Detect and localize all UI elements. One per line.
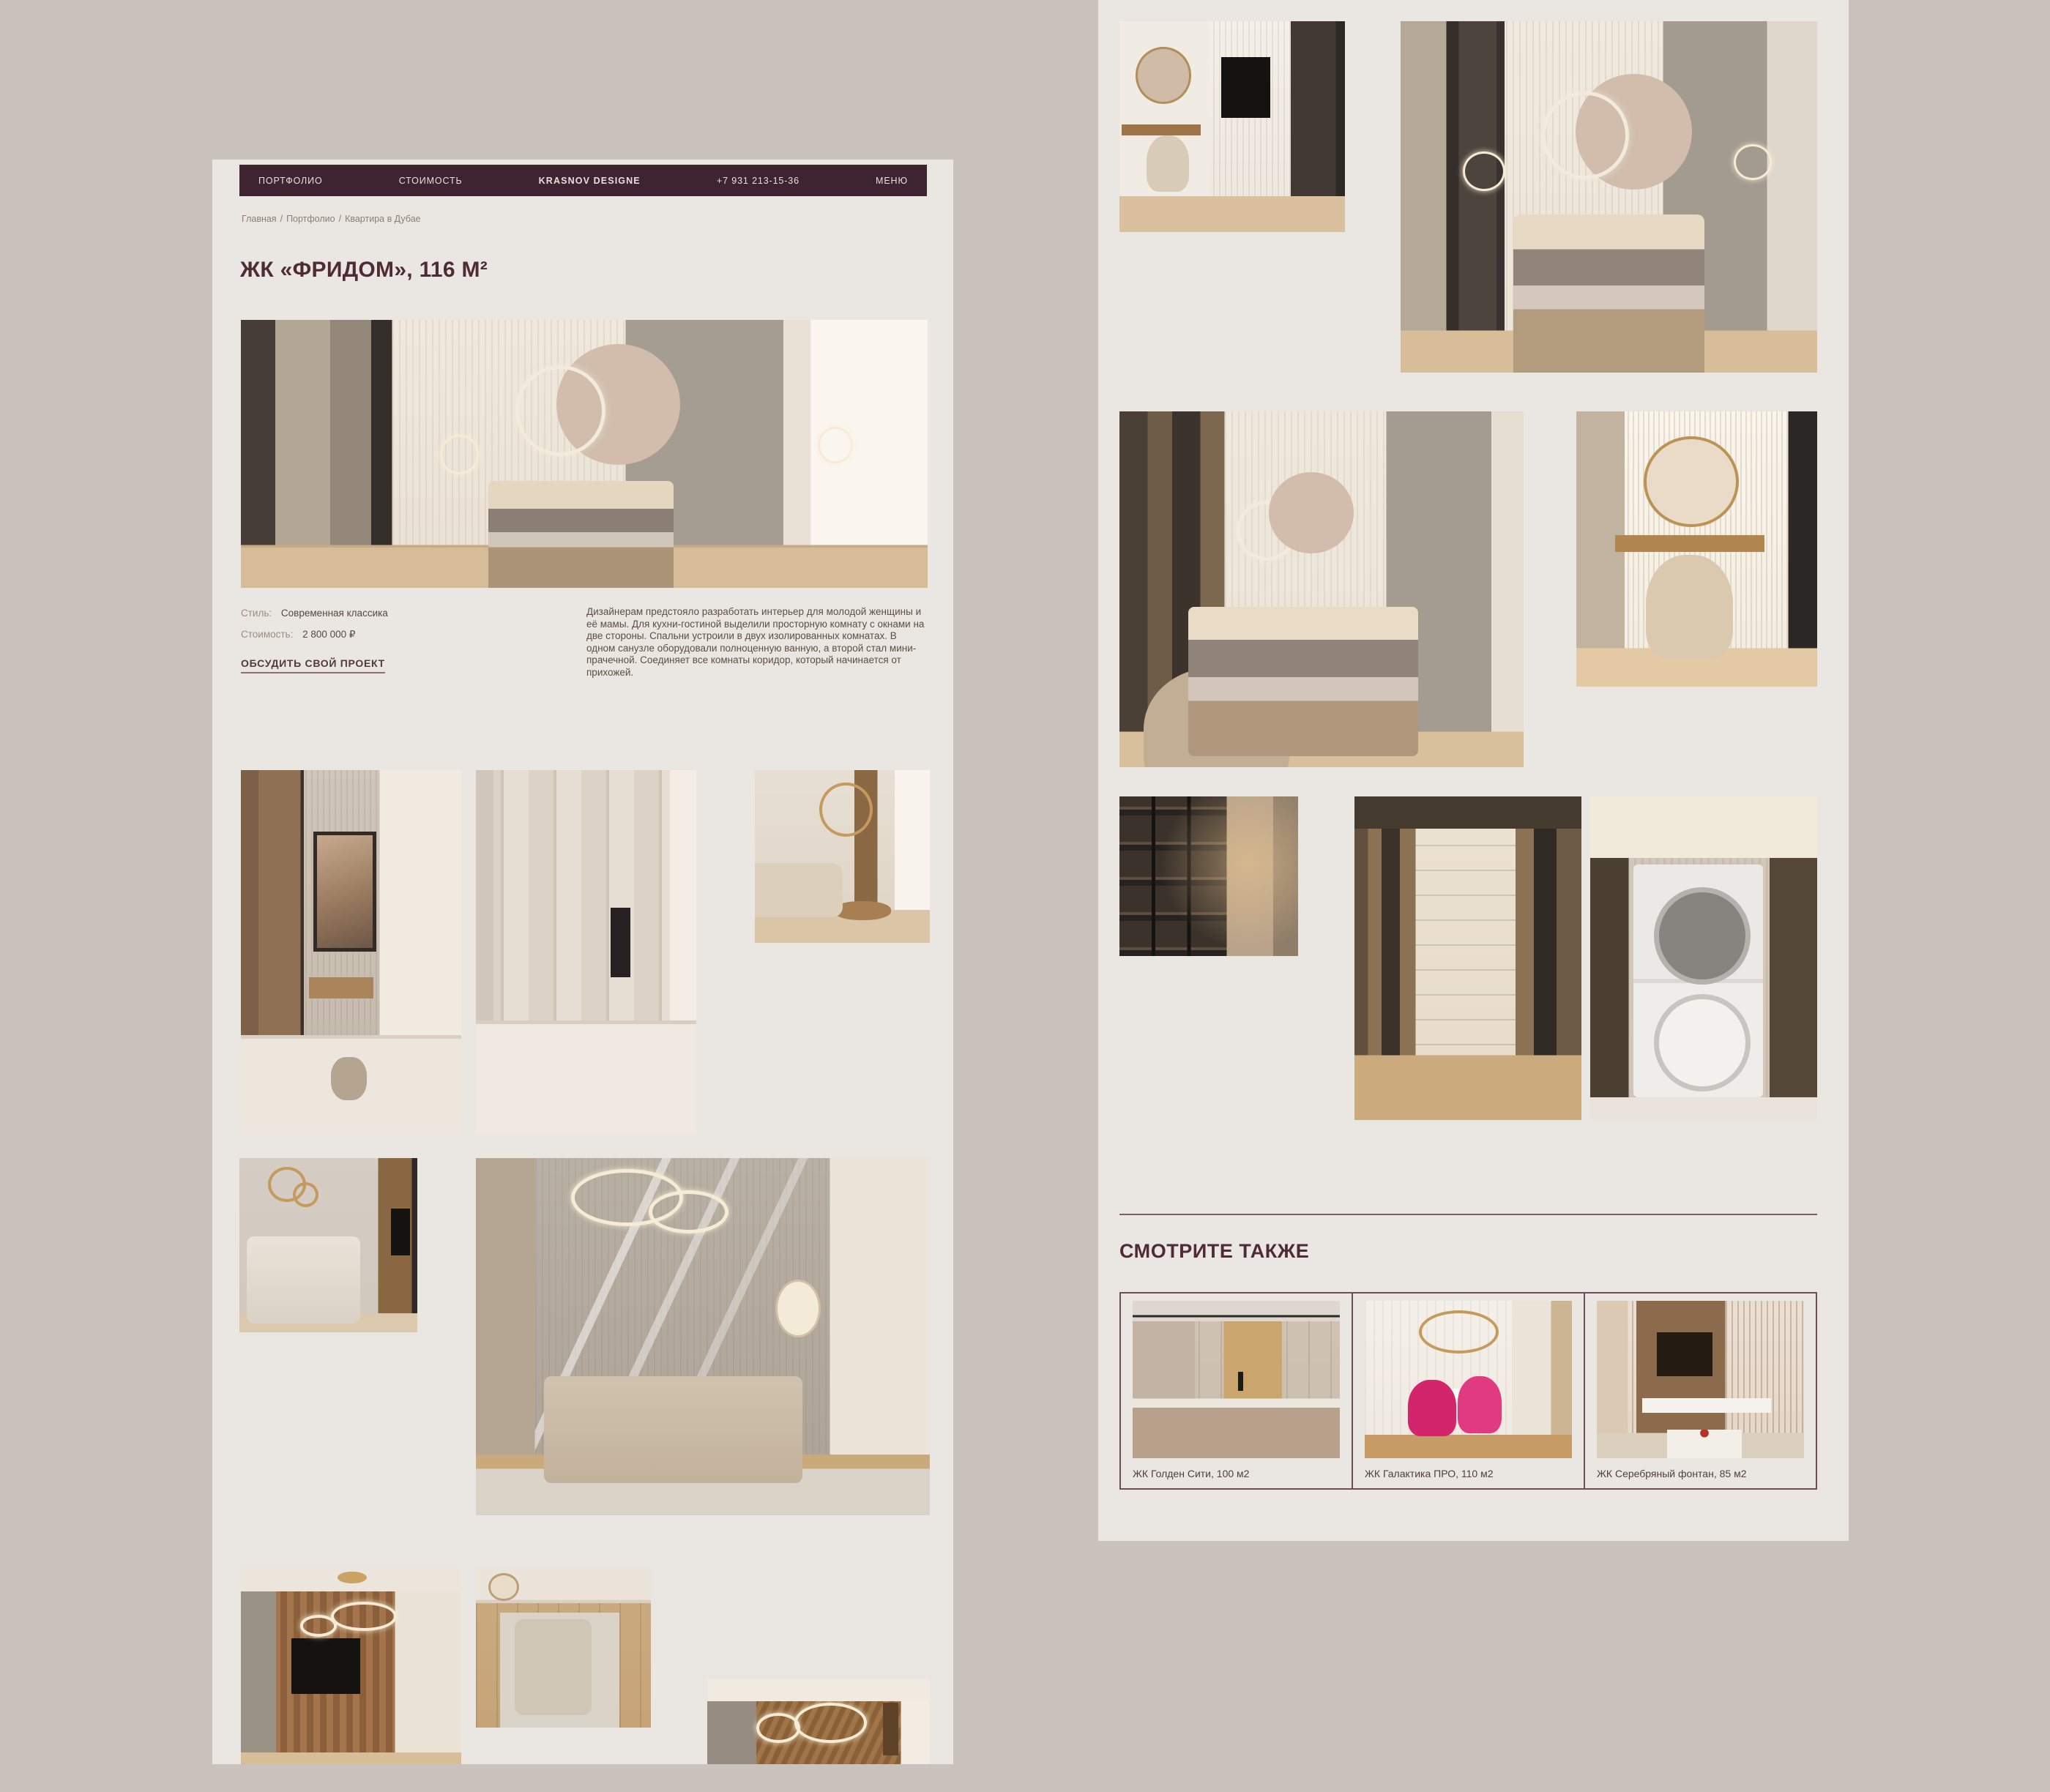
round-mirror [1136, 47, 1192, 104]
card-label: ЖК Голден Сити, 100 м2 [1133, 1468, 1340, 1479]
mirror-disc [1269, 472, 1354, 554]
price-label: Стоимость: [241, 629, 293, 640]
oval-mirror [488, 1573, 519, 1602]
project-meta: Стиль: Современная классика Стоимость: 2… [241, 608, 570, 673]
ring-chandelier [794, 1703, 867, 1742]
discuss-project-link[interactable]: ОБСУДИТЬ СВОЙ ПРОЕКТ [241, 657, 385, 673]
breadcrumb-separator: / [339, 214, 341, 224]
breadcrumb-current: Квартира в Дубае [345, 214, 421, 224]
pendant-ring-lamp [818, 427, 853, 463]
nav-portfolio-link[interactable]: ПОРТФОЛИО [258, 176, 323, 186]
wall-desk [1122, 124, 1201, 135]
nav-pricing-link[interactable]: СТОИМОСТЬ [399, 176, 463, 186]
card-golden-city[interactable]: ЖК Голден Сити, 100 м2 [1121, 1293, 1353, 1488]
pink-chair [1408, 1380, 1455, 1436]
tv-screen [391, 1209, 411, 1255]
photo-hallway-entrance [241, 770, 461, 1133]
mirror-ring [515, 365, 605, 455]
photo-vanity-mirror [1576, 411, 1817, 687]
page-title: ЖК «ФРИДОМ», 116 М² [240, 258, 488, 283]
photo-bedroom-main [1401, 21, 1817, 373]
photo-walk-in-closet [1354, 796, 1581, 1120]
photo-media-lounge [239, 1158, 417, 1332]
card-galaktika-pro[interactable]: ЖК Галактика ПРО, 110 м2 [1353, 1293, 1585, 1488]
portfolio-gallery-page: СМОТРИТЕ ТАКЖЕ ЖК Голден Сити, 100 м2 ЖК… [1098, 0, 1849, 1541]
dryer-door [1654, 994, 1751, 1091]
ring-chandelier [331, 1602, 396, 1631]
project-description: Дизайнерам предстояло разработать интерь… [586, 606, 926, 679]
tv-screen [1657, 1332, 1712, 1376]
washer-door [1654, 887, 1751, 985]
ring-chandelier [649, 1190, 728, 1233]
breadcrumb-portfolio-link[interactable]: Портфолио [286, 214, 335, 224]
ring-chandelier [819, 783, 873, 837]
pouf [331, 1057, 366, 1101]
ring-chandelier [756, 1713, 800, 1742]
photo-hallway-mirrors [476, 770, 696, 1133]
style-value: Современная классика [281, 608, 388, 619]
style-label: Стиль: [241, 608, 272, 619]
chair [1646, 555, 1732, 660]
portfolio-project-page: ПОРТФОЛИО СТОИМОСТЬ KRASNOV DESIGNE +7 9… [212, 160, 953, 1764]
top-nav: ПОРТФОЛИО СТОИМОСТЬ KRASNOV DESIGNE +7 9… [239, 165, 927, 196]
round-mirror [1644, 436, 1739, 528]
mirror-ring [1542, 92, 1628, 179]
pendant-ring-lamp [1463, 152, 1505, 191]
nav-menu-button[interactable]: МЕНЮ [876, 176, 908, 186]
pendant-ring-lamp [1734, 144, 1772, 180]
photo-serebryany-tv-dining [1597, 1301, 1804, 1458]
photo-sofa-top-view [476, 1568, 651, 1728]
photo-kitchen-living-corner [755, 770, 930, 943]
tv-screen [291, 1638, 359, 1693]
wall-desk [1615, 535, 1764, 552]
tv-screen [1221, 57, 1271, 119]
breadcrumb: Главная/Портфолио/Квартира в Дубае [242, 214, 421, 224]
card-serebryany-fontan[interactable]: ЖК Серебряный фонтан, 85 м2 [1585, 1293, 1816, 1488]
style-row: Стиль: Современная классика [241, 608, 570, 619]
breadcrumb-separator: / [280, 214, 283, 224]
photo-tv-wood-wall [241, 1568, 461, 1764]
photo-hero-bedroom [241, 320, 928, 588]
kitchen-faucet [1238, 1372, 1243, 1391]
nav-brand-logo[interactable]: KRASNOV DESIGNE [539, 176, 641, 186]
photo-closet-shelves [1119, 796, 1298, 956]
card-label: ЖК Галактика ПРО, 110 м2 [1365, 1468, 1572, 1479]
section-divider [1119, 1214, 1817, 1215]
dining-table [834, 901, 892, 920]
breadcrumb-home-link[interactable]: Главная [242, 214, 277, 224]
ring-chandelier [293, 1182, 318, 1207]
price-row: Стоимость: 2 800 000 ₽ [241, 629, 570, 641]
oval-mirror [775, 1280, 821, 1337]
see-also-cards: ЖК Голден Сити, 100 м2 ЖК Галактика ПРО,… [1119, 1292, 1817, 1490]
nav-phone-link[interactable]: +7 931 213-15-36 [717, 176, 799, 186]
ring-chandelier [1419, 1310, 1499, 1354]
pendant-ring-lamp [440, 435, 479, 474]
photo-living-room-panels [476, 1158, 930, 1515]
see-also-title: СМОТРИТЕ ТАКЖЕ [1119, 1240, 1309, 1263]
price-value: 2 800 000 ₽ [302, 629, 355, 640]
photo-laundry-niche [1590, 796, 1817, 1120]
photo-bedroom-wardrobe [1119, 411, 1524, 767]
wall-art [313, 832, 376, 952]
photo-golden-city-kitchen [1133, 1301, 1340, 1458]
photo-galaktika-dining [1365, 1301, 1572, 1458]
pink-chair [1458, 1376, 1501, 1433]
photo-kitchen-dining [707, 1679, 930, 1764]
armchair [1144, 668, 1289, 767]
ring-chandelier [300, 1615, 337, 1636]
photo-vanity-workspace [1119, 21, 1345, 232]
card-label: ЖК Серебряный фонтан, 85 м2 [1597, 1468, 1804, 1479]
